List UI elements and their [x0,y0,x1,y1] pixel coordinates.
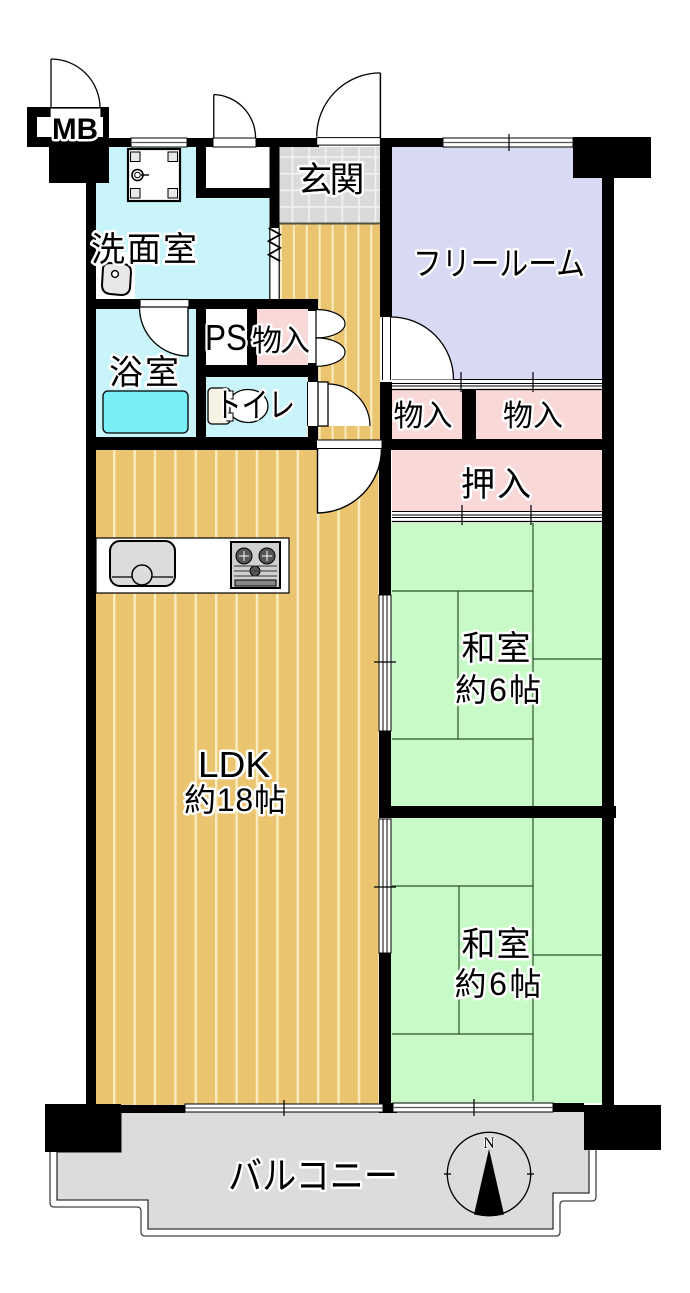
svg-text:物入: 物入 [503,400,563,433]
svg-text:約18帖: 約18帖 [184,782,286,818]
svg-text:PS: PS [205,317,247,358]
svg-text:約6帖: 約6帖 [455,966,542,1002]
svg-text:トイレ: トイレ [215,387,295,425]
svg-text:和室: 和室 [462,630,531,668]
svg-text:約6帖: 約6帖 [455,672,541,708]
svg-text:LDK: LDK [198,744,270,785]
svg-text:物入: 物入 [252,325,310,358]
svg-text:フリールーム: フリールーム [413,245,585,282]
svg-text:N: N [483,1135,495,1152]
svg-text:洗面室: 洗面室 [91,231,197,269]
svg-text:バルコニー: バルコニー [228,1156,398,1198]
svg-text:和室: 和室 [462,926,531,964]
svg-text:玄関: 玄関 [298,161,365,200]
svg-text:MB: MB [52,113,98,146]
svg-text:物入: 物入 [394,400,453,433]
